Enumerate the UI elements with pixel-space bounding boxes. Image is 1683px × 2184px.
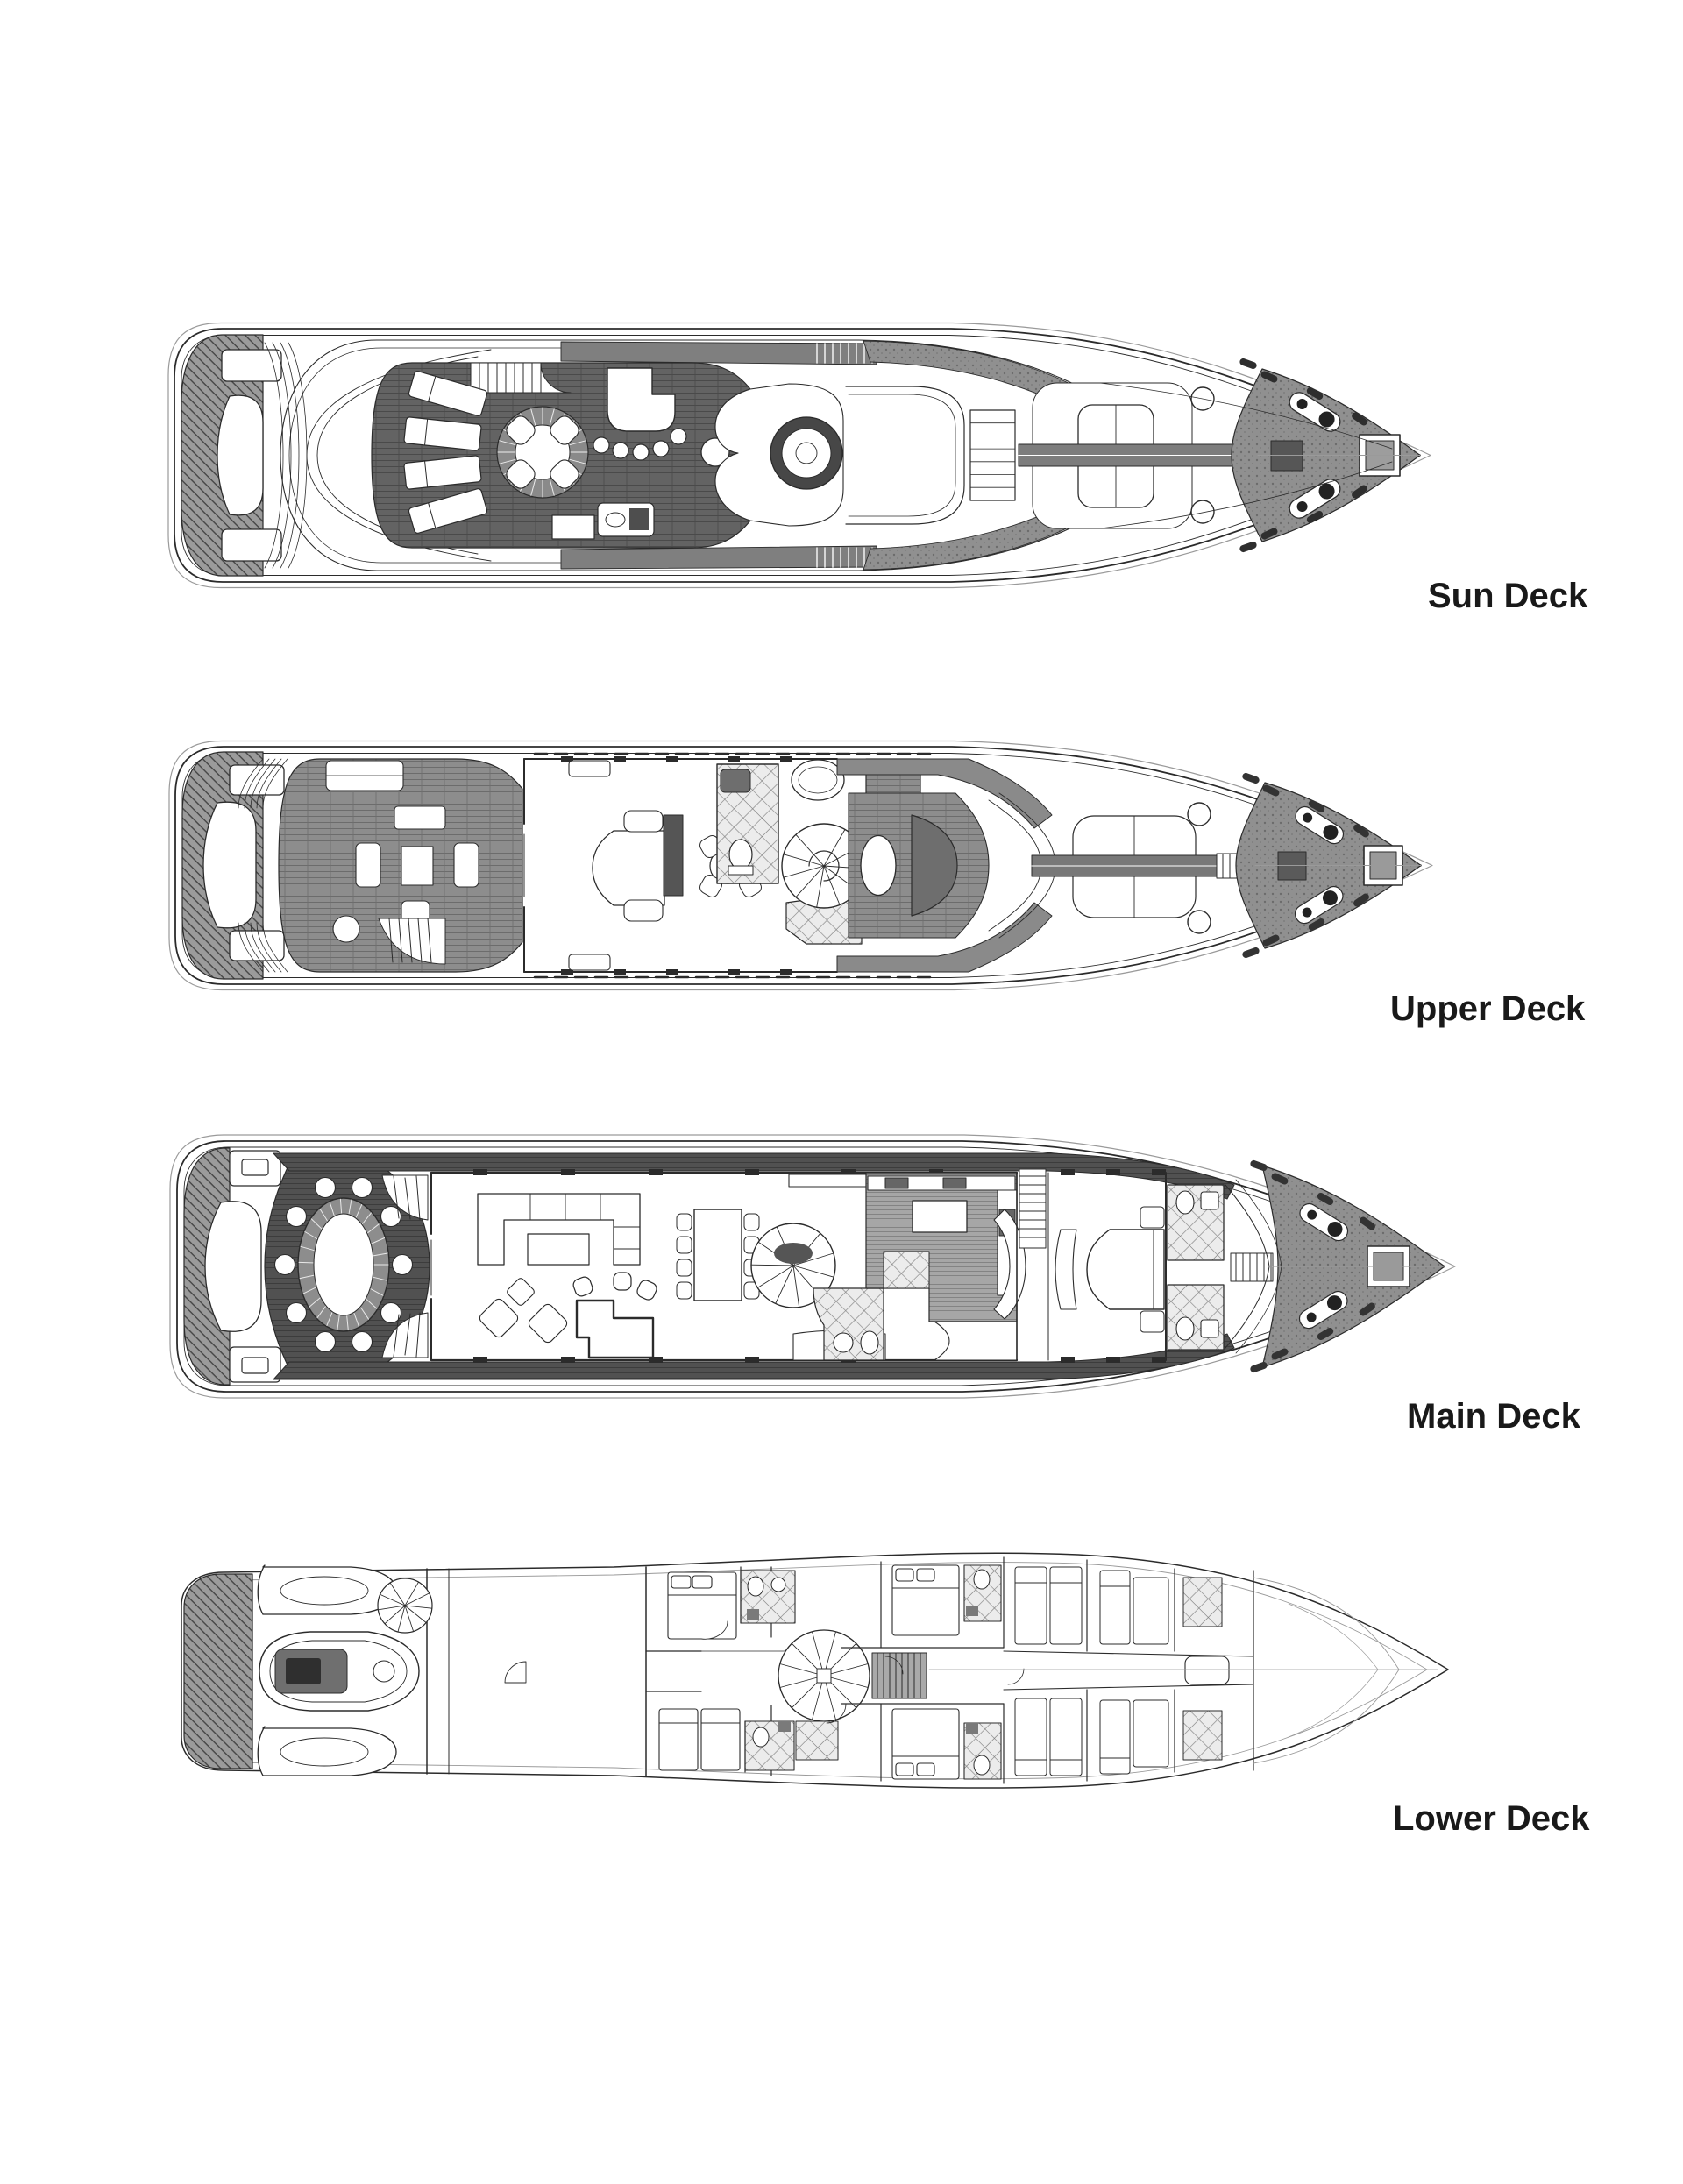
svg-text:Lower Deck: Lower Deck <box>1393 1799 1590 1838</box>
svg-text:Main Deck: Main Deck <box>1407 1397 1581 1436</box>
svg-text:Sun Deck: Sun Deck <box>1428 577 1588 615</box>
svg-text:Upper Deck: Upper Deck <box>1390 989 1586 1028</box>
